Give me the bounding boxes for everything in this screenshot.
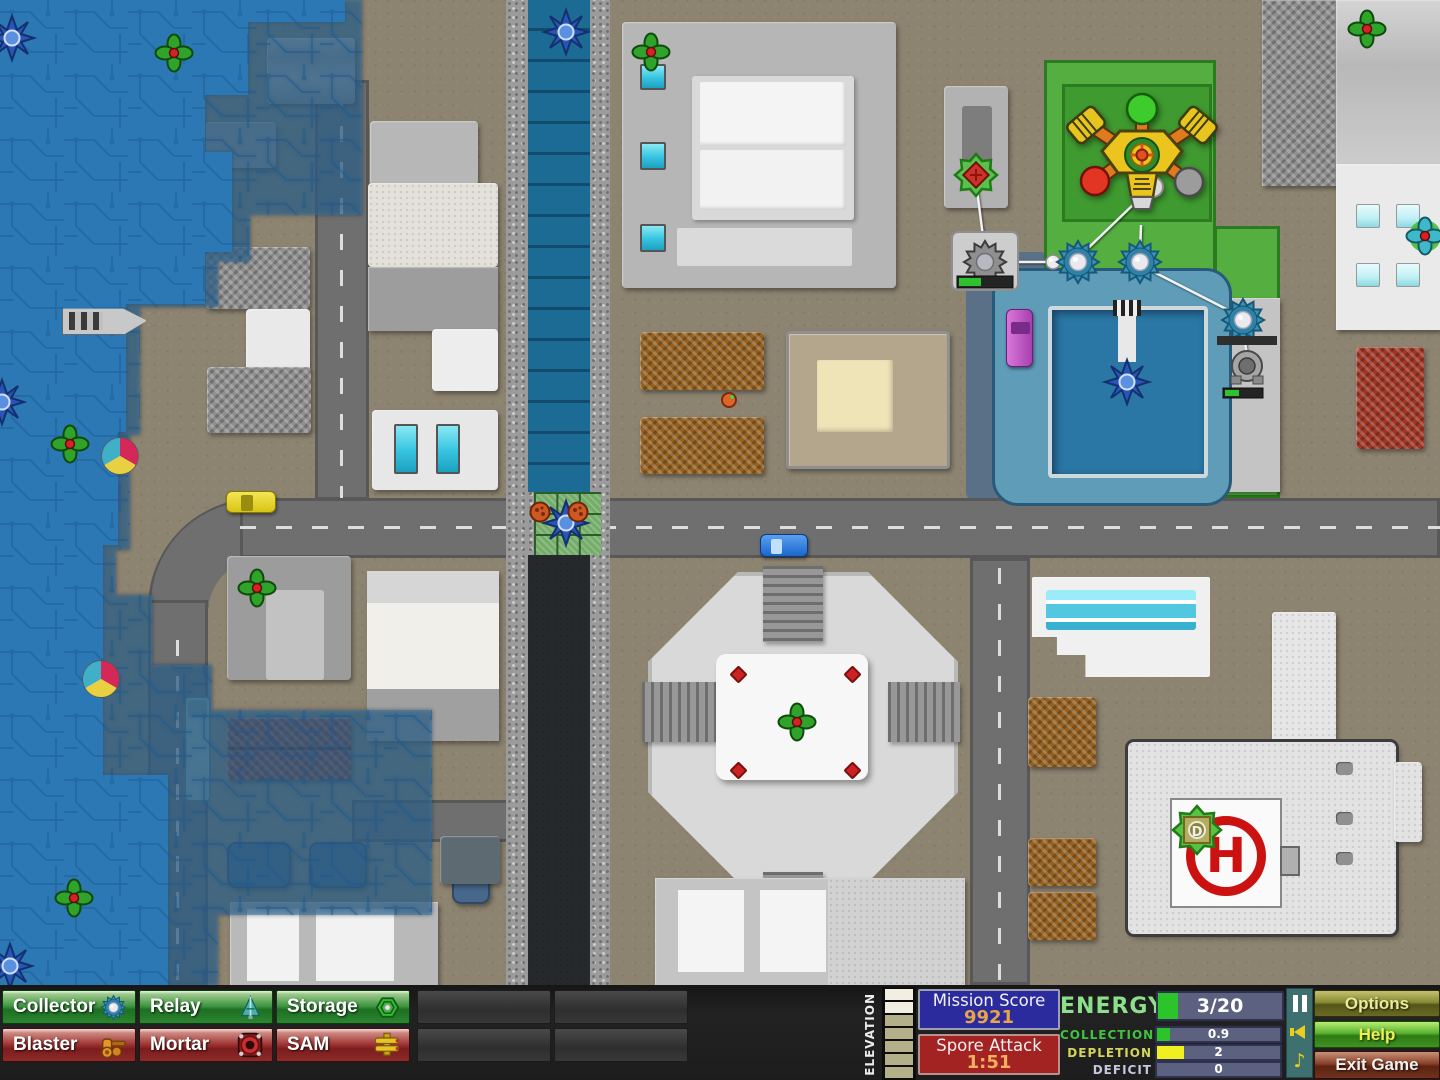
build-button-collector[interactable]: Collector <box>2 990 136 1024</box>
flower-marker <box>779 704 816 741</box>
collection-bar: 0.9 <box>1155 1026 1282 1043</box>
storage-icon <box>374 994 401 1021</box>
depletion-label: DEPLETION <box>1060 1046 1152 1060</box>
mission-score-value: 9921 <box>920 1009 1058 1028</box>
flower-marker <box>1349 11 1386 48</box>
elevation-label: ELEVATION <box>860 988 880 1080</box>
build-button-storage[interactable]: Storage <box>276 990 410 1024</box>
car-blue <box>760 534 808 557</box>
pod-marker <box>531 503 550 522</box>
energy-bar-value: 3/20 <box>1158 993 1282 1019</box>
build-button-mortar[interactable]: Mortar <box>139 1028 273 1062</box>
speaker-icon[interactable] <box>1294 1025 1305 1039</box>
build-button-relay[interactable]: Relay <box>139 990 273 1024</box>
deficit-bar: 0 <box>1155 1061 1282 1078</box>
collector-marker[interactable] <box>1119 241 1161 283</box>
pause-icon[interactable] <box>1293 995 1307 1012</box>
empty-build-slot <box>554 1028 688 1062</box>
spore-marker <box>544 10 588 54</box>
elevation-meter <box>882 987 916 1080</box>
deficit-value: 0 <box>1157 1063 1280 1076</box>
depletion-bar: 2 <box>1155 1044 1282 1061</box>
blaster-icon <box>99 1031 127 1059</box>
build-button-label: Storage <box>287 996 358 1018</box>
hud-bar: Collector Relay Storage Blaster Mortar S… <box>0 985 1440 1080</box>
build-button-blaster[interactable]: Blaster <box>2 1028 136 1062</box>
empty-build-slot <box>417 1028 551 1062</box>
build-button-label: Relay <box>150 996 201 1018</box>
pickup-letter: D <box>1192 825 1203 840</box>
collector-marker[interactable] <box>1057 241 1099 283</box>
creeper-field <box>0 0 432 985</box>
spore-attack-panel: Spore Attack 1:51 <box>918 1034 1060 1075</box>
mission-score-panel: Mission Score 9921 <box>918 989 1060 1030</box>
options-button[interactable]: Options <box>1314 990 1440 1017</box>
energy-label: ENERGY <box>1060 994 1165 1019</box>
spore-marker <box>1105 360 1149 404</box>
energy-bar: 3/20 <box>1156 991 1284 1021</box>
beachball-marker <box>83 661 119 697</box>
spore-attack-value: 1:51 <box>920 1054 1058 1073</box>
deficit-label: DEFICIT <box>1060 1063 1152 1077</box>
sam-icon <box>373 1031 401 1059</box>
mortar-gray-marker[interactable] <box>1217 336 1277 398</box>
game-map[interactable]: H <box>0 0 1440 985</box>
empty-build-slot <box>554 990 688 1024</box>
beachball-marker <box>102 438 138 474</box>
music-note-icon[interactable]: ♪ <box>1293 1052 1305 1071</box>
car-purple <box>1006 309 1033 367</box>
creeper-and-units-layer: D <box>0 0 1440 985</box>
av-controls: ♪ <box>1286 988 1313 1078</box>
collector-gray-marker[interactable] <box>952 232 1018 290</box>
depletion-value: 2 <box>1157 1046 1280 1059</box>
collection-value: 0.9 <box>1157 1028 1280 1041</box>
game-screen: { "title": "Creeper World - city defense… <box>0 0 1440 1080</box>
flower-marker <box>239 570 276 607</box>
collection-label: COLLECTION <box>1060 1028 1152 1042</box>
pod-small-marker <box>722 393 736 407</box>
build-button-label: Blaster <box>13 1034 77 1056</box>
relay-icon <box>237 994 264 1021</box>
car-yellow <box>226 491 276 513</box>
gear-red-marker <box>955 154 997 196</box>
build-button-label: Collector <box>13 996 95 1018</box>
odin-city[interactable] <box>1065 94 1218 209</box>
exit-game-button[interactable]: Exit Game <box>1314 1051 1440 1079</box>
collector-marker[interactable] <box>1222 299 1264 341</box>
build-button-label: SAM <box>287 1034 329 1056</box>
build-button-label: Mortar <box>150 1034 209 1056</box>
empty-build-slot <box>417 990 551 1024</box>
pod-marker <box>569 503 588 522</box>
flower-cyan-marker <box>1407 218 1440 255</box>
build-button-sam[interactable]: SAM <box>276 1028 410 1062</box>
help-button[interactable]: Help <box>1314 1021 1440 1048</box>
flower-marker <box>633 34 670 71</box>
mortar-icon <box>236 1031 264 1059</box>
collector-icon <box>100 994 127 1021</box>
